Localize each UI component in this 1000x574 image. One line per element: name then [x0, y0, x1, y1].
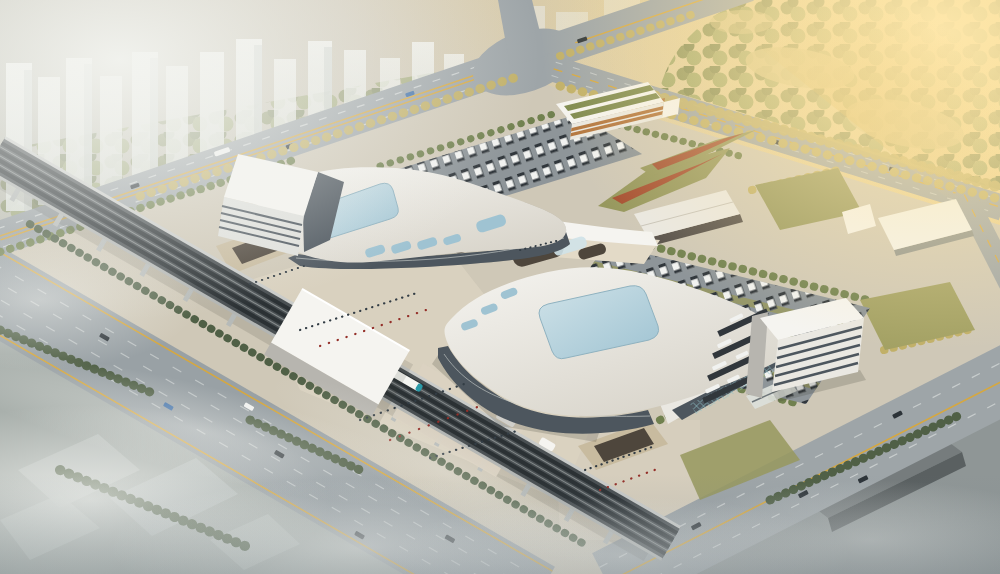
bottom-vignette: [0, 474, 1000, 574]
rendering-canvas: [0, 0, 1000, 574]
aerial-rendering-svg: [0, 0, 1000, 574]
